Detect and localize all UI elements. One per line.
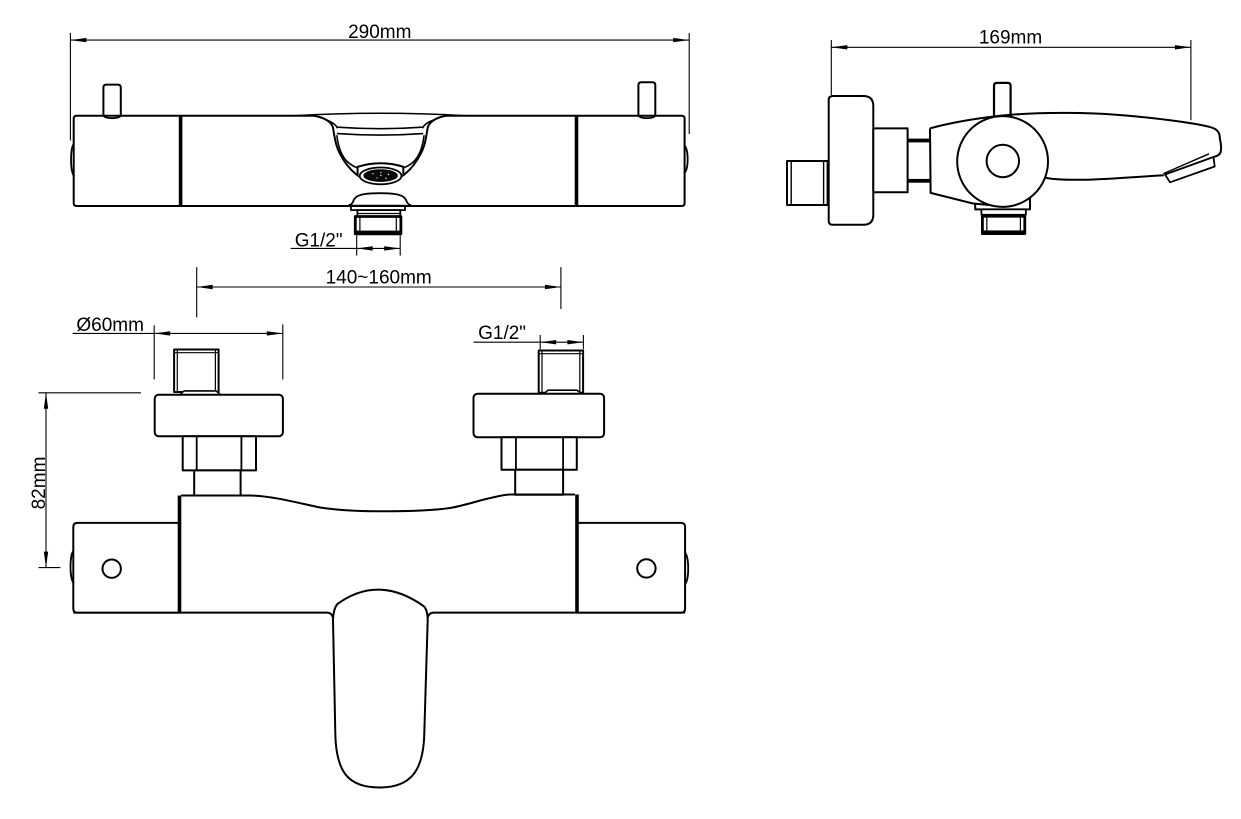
svg-text:82mm: 82mm xyxy=(29,457,50,510)
svg-text:140~160mm: 140~160mm xyxy=(326,268,432,289)
svg-text:169mm: 169mm xyxy=(979,28,1042,49)
svg-text:G1/2": G1/2" xyxy=(478,323,526,344)
